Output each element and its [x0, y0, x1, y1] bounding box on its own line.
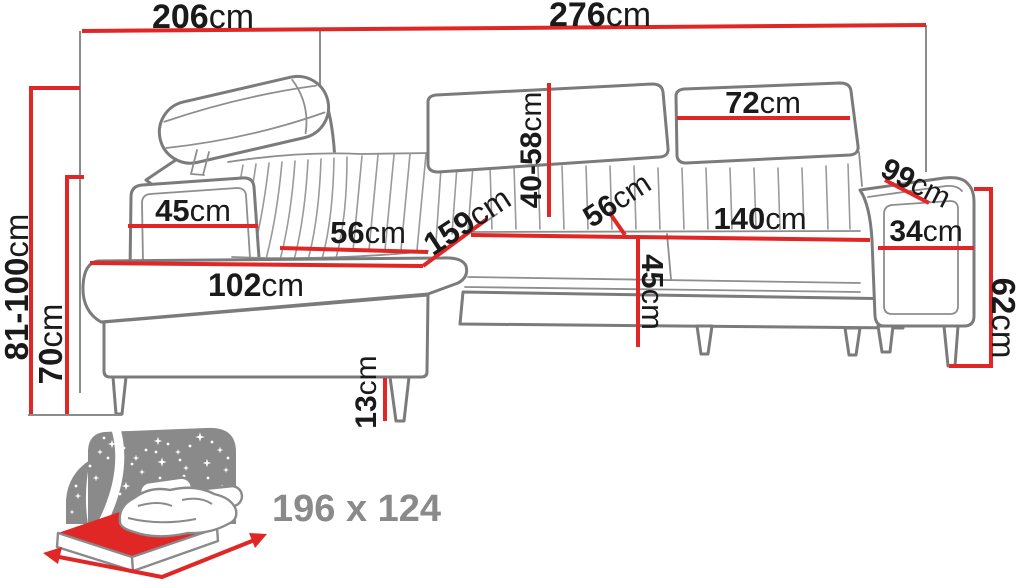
dim-label-backrest-height: 81-100cm [0, 214, 35, 361]
blanket [120, 488, 237, 537]
dim-label-overall-width-right: 276cm [549, 0, 651, 34]
star-dot [211, 441, 214, 444]
night-sky-panel-small [66, 460, 90, 524]
star-dot [107, 457, 110, 460]
right-armrest-leg-2 [944, 326, 958, 366]
sleeping-area-size-label: 196 x 124 [272, 488, 441, 530]
star-dot [207, 477, 210, 480]
star-dot [189, 445, 192, 448]
chaise-front-leg [113, 377, 126, 414]
sleeping-function-bed-icon [43, 428, 267, 577]
dim-label-chaise-seat-width: 56cm [330, 215, 406, 250]
dim-line-seat-width [471, 235, 870, 240]
dim-label-overall-width-left: 206cm [152, 0, 254, 36]
dim-label-armrest-height-left: 70cm [32, 304, 69, 385]
arrowhead-left [43, 547, 62, 564]
dim-label-left-armrest-depth: 45cm [155, 193, 231, 228]
dim-label-chaise-front-length: 102cm [208, 267, 304, 303]
star-dot [145, 449, 148, 452]
star-dot [179, 459, 182, 462]
middle-leg-1 [697, 326, 712, 354]
dim-label-backrest-cushion-width: 72cm [725, 85, 801, 120]
dim-label-seat-height: 45cm [636, 254, 671, 330]
diagram-canvas: 206cm 276cm 81-100cm 70cm 45cm 56cm 102c… [0, 0, 1020, 588]
dim-label-backrest-cushion-height: 40-58cm [515, 92, 548, 209]
middle-leg-2 [845, 328, 860, 355]
dim-label-right-armrest-width: 34cm [889, 215, 962, 248]
dim-label-leg-height: 13cm [350, 355, 383, 428]
chaise-back-leg [390, 377, 409, 421]
star-dot [227, 457, 230, 460]
star-dot [159, 477, 162, 480]
star-dot [103, 437, 106, 440]
sofa-dimension-diagram: 206cm 276cm 81-100cm 70cm 45cm 56cm 102c… [0, 0, 1020, 588]
star-dot [167, 443, 170, 446]
star-dot [131, 463, 134, 466]
dim-label-right-armrest-height: 62cm [986, 278, 1020, 359]
star-dot [155, 451, 158, 454]
star-dot [123, 447, 126, 450]
star-dot [75, 485, 78, 488]
right-armrest-leg-1 [878, 326, 893, 352]
star-dot [119, 493, 122, 496]
star-dot [89, 465, 92, 468]
dim-line-armrest-height-left [67, 177, 84, 414]
dim-label-seat-width: 140cm [713, 201, 806, 236]
middle-base [460, 292, 903, 328]
